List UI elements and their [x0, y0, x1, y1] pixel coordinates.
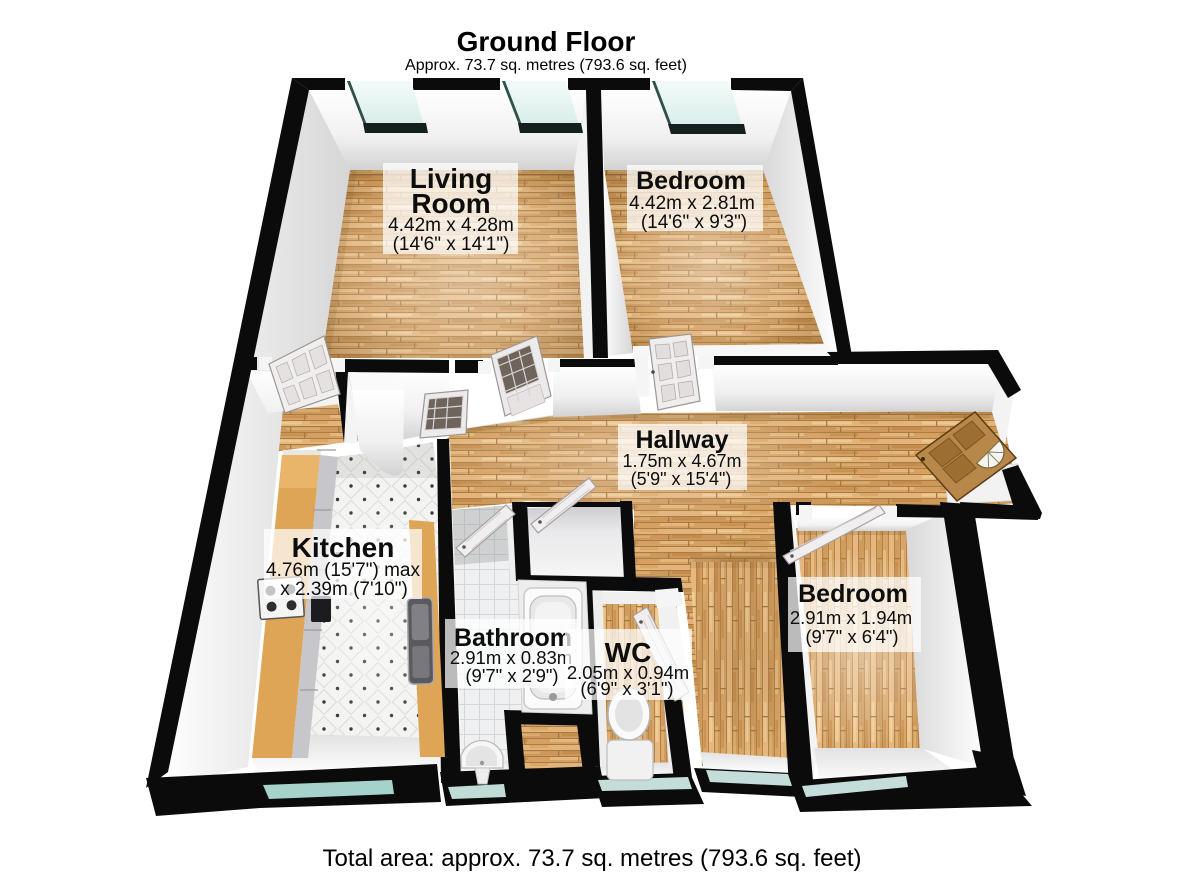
svg-text:(6'9" x 3'1"): (6'9" x 3'1") [580, 678, 673, 699]
svg-text:Ground Floor: Ground Floor [457, 26, 636, 57]
svg-text:(5'9" x 15'4"): (5'9" x 15'4") [631, 469, 732, 489]
svg-text:Approx. 73.7 sq. metres (793.6: Approx. 73.7 sq. metres (793.6 sq. feet) [405, 57, 687, 74]
svg-text:4.42m x 2.81m: 4.42m x 2.81m [629, 193, 755, 214]
svg-text:4.76m (15'7") max: 4.76m (15'7") max [266, 560, 420, 581]
svg-text:(9'7" x 6'4"): (9'7" x 6'4") [805, 626, 898, 647]
svg-text:Bedroom: Bedroom [798, 580, 908, 608]
svg-text:(14'6" x 9'3"): (14'6" x 9'3") [641, 212, 747, 233]
svg-text:4.42m x 4.28m: 4.42m x 4.28m [388, 215, 514, 236]
svg-text:x 2.39m (7'10"): x 2.39m (7'10") [280, 579, 408, 600]
svg-text:2.91m x 1.94m: 2.91m x 1.94m [790, 607, 912, 628]
svg-text:(14'6" x 14'1"): (14'6" x 14'1") [393, 234, 510, 255]
svg-text:Kitchen: Kitchen [292, 532, 395, 563]
svg-text:1.75m x 4.67m: 1.75m x 4.67m [622, 451, 741, 471]
svg-text:Hallway: Hallway [635, 426, 728, 454]
svg-text:(9'7" x 2'9"): (9'7" x 2'9") [465, 665, 558, 686]
svg-text:Total area: approx. 73.7 sq. m: Total area: approx. 73.7 sq. metres (793… [323, 845, 862, 872]
svg-text:Bedroom: Bedroom [636, 167, 746, 195]
